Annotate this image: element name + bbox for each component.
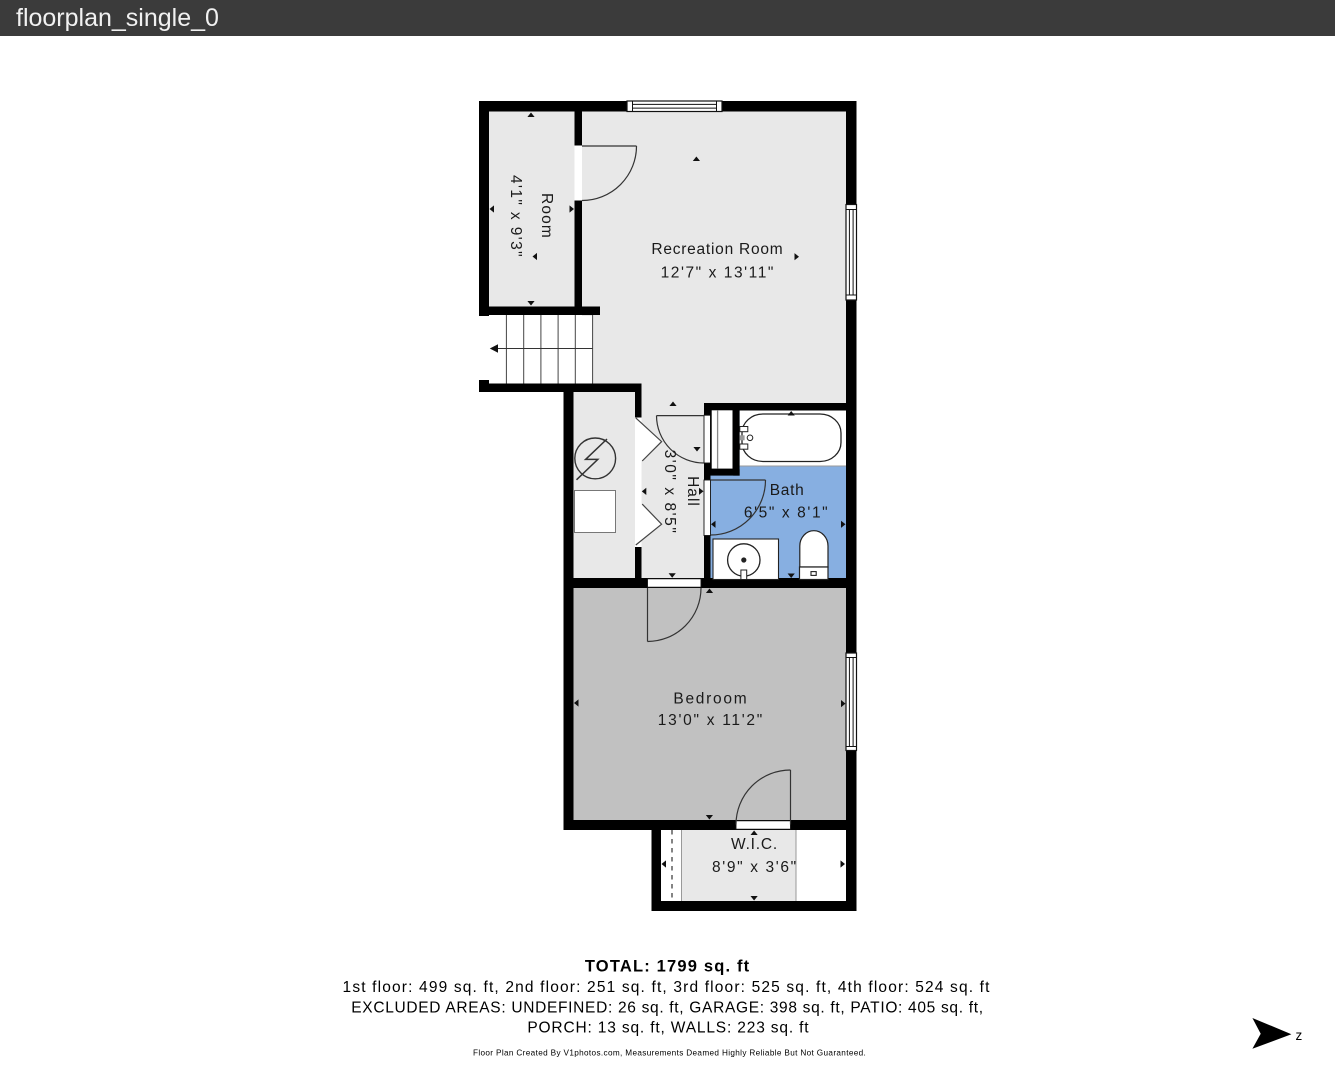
svg-text:Room: Room [538,193,555,239]
svg-text:4'1" x 9'3": 4'1" x 9'3" [507,175,524,258]
svg-text:12'7" x 13'11": 12'7" x 13'11" [661,264,775,281]
svg-text:Recreation Room: Recreation Room [651,241,783,258]
svg-text:1st floor: 499 sq. ft, 2nd flo: 1st floor: 499 sq. ft, 2nd floor: 251 sq… [343,979,991,996]
svg-text:Hall: Hall [684,476,701,507]
svg-text:W.I.C.: W.I.C. [731,836,778,853]
svg-text:EXCLUDED AREAS: UNDEFINED: 26: EXCLUDED AREAS: UNDEFINED: 26 sq. ft, GA… [351,999,983,1016]
svg-text:Bedroom: Bedroom [673,690,748,707]
svg-text:13'0" x 11'2": 13'0" x 11'2" [658,712,764,729]
svg-text:TOTAL: 1799 sq. ft: TOTAL: 1799 sq. ft [585,957,751,975]
svg-text:PORCH: 13 sq. ft, WALLS: 223 s: PORCH: 13 sq. ft, WALLS: 223 sq. ft [527,1019,809,1036]
svg-text:6'5" x 8'1": 6'5" x 8'1" [744,505,829,522]
svg-text:floorplan_single_0: floorplan_single_0 [16,4,219,32]
svg-text:z: z [1296,1028,1303,1043]
svg-text:Floor Plan Created By V1photos: Floor Plan Created By V1photos.com, Meas… [473,1048,866,1057]
svg-text:3'0" x 8'5": 3'0" x 8'5" [661,450,678,535]
svg-text:Bath: Bath [770,482,805,499]
svg-text:8'9" x 3'6": 8'9" x 3'6" [712,859,798,876]
